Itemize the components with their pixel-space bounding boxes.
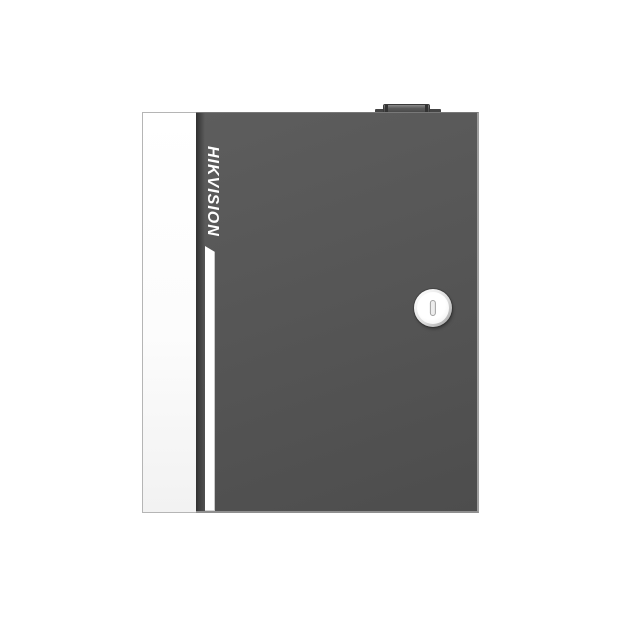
- side-mounting-panel: [142, 112, 197, 513]
- accent-stripe: [205, 246, 215, 511]
- keyhole-icon: [430, 300, 436, 316]
- lock-face: [417, 292, 449, 324]
- brand-logo: HIKVISION: [203, 146, 221, 238]
- keyhole-lock: [414, 289, 452, 327]
- product-image: HIKVISION: [0, 0, 620, 620]
